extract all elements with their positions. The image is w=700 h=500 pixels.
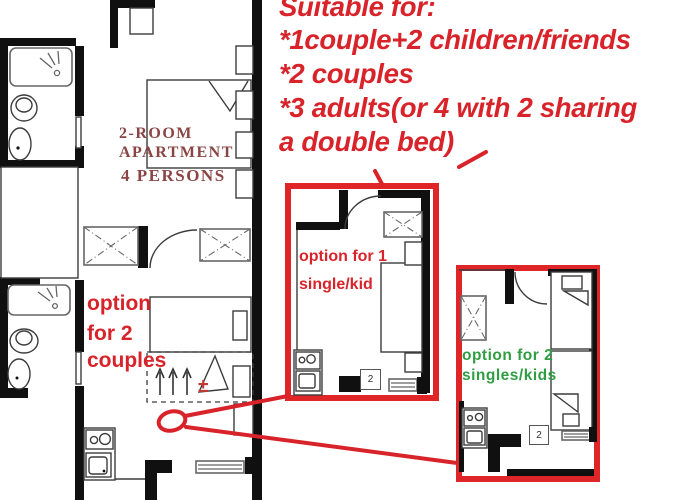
suitable-for-line-2: *2 couples [279,57,414,90]
shower-icon [8,285,70,315]
option-2-couples-line1: option [87,290,151,318]
apartment-persons-label: 4 PERSONS [121,166,226,186]
single-bed [551,351,592,430]
door-arc [150,230,197,268]
main-floor-plan [0,0,262,500]
tick-mark [459,152,486,167]
corridor [84,227,250,268]
storage-room [1,167,78,278]
nightstand [130,8,153,34]
radiator-icon [196,461,244,473]
nightstand [233,366,250,397]
option-two-singles-label-line2: singles/kids [462,366,557,386]
suitable-for-line-1: *1couple+2 children/friends [279,23,631,56]
toilet-icon [11,95,37,121]
option-single-label-line1: option for 1 [299,243,387,271]
tick-mark [375,171,382,184]
suitable-for-line-4: a double bed) [279,125,454,158]
nightstand [234,404,253,435]
radiator-icon [389,379,417,391]
toilet-icon [10,329,38,353]
apartment-title-line1: 2-ROOM [119,125,193,143]
suitable-for-title: Suitable for: [279,0,436,23]
kitchen [462,408,487,448]
sink-icon [8,359,30,389]
shower-icon [10,48,72,86]
single-bed [551,272,592,349]
radiator-icon [562,431,590,440]
wardrobe-icon [461,296,486,340]
plus-minus-symbol: ± [198,376,208,398]
floor-plan-page: Suitable for: *1couple+2 children/friend… [0,0,700,500]
kitchen [84,428,145,480]
bathroom-bottom [8,285,70,389]
highlight-circle [157,409,188,434]
nightstand [405,242,422,265]
room-number-badge: 2 [360,369,381,390]
table [339,376,361,392]
nightstand [405,353,422,372]
option-2-couples-line2: for 2 [87,320,133,348]
option-two-singles-label-line1: option for 2 [462,346,553,366]
bed-pillow [233,311,247,340]
wardrobe-icon [384,212,422,237]
kitchen-sink-icon [86,453,111,477]
bathroom1-door [76,117,81,148]
bathroom-top [9,48,72,160]
kitchen [294,350,322,395]
wardrobe-icon [84,227,138,265]
option-single-label-line2: single/kid [299,271,373,299]
suitable-for-line-3: *3 adults(or 4 with 2 sharing [279,91,637,124]
connector-line-to-inset2 [186,427,457,463]
stove-icon [86,430,113,449]
sink-icon [9,128,31,160]
option-2-couples-line3: couples [87,347,166,375]
apartment-title-line2: APARTMENT [119,144,234,162]
single-bed [381,263,422,352]
wardrobe-icon [200,229,250,261]
room-number-badge: 2 [529,425,549,445]
bathroom2-door [76,352,81,384]
